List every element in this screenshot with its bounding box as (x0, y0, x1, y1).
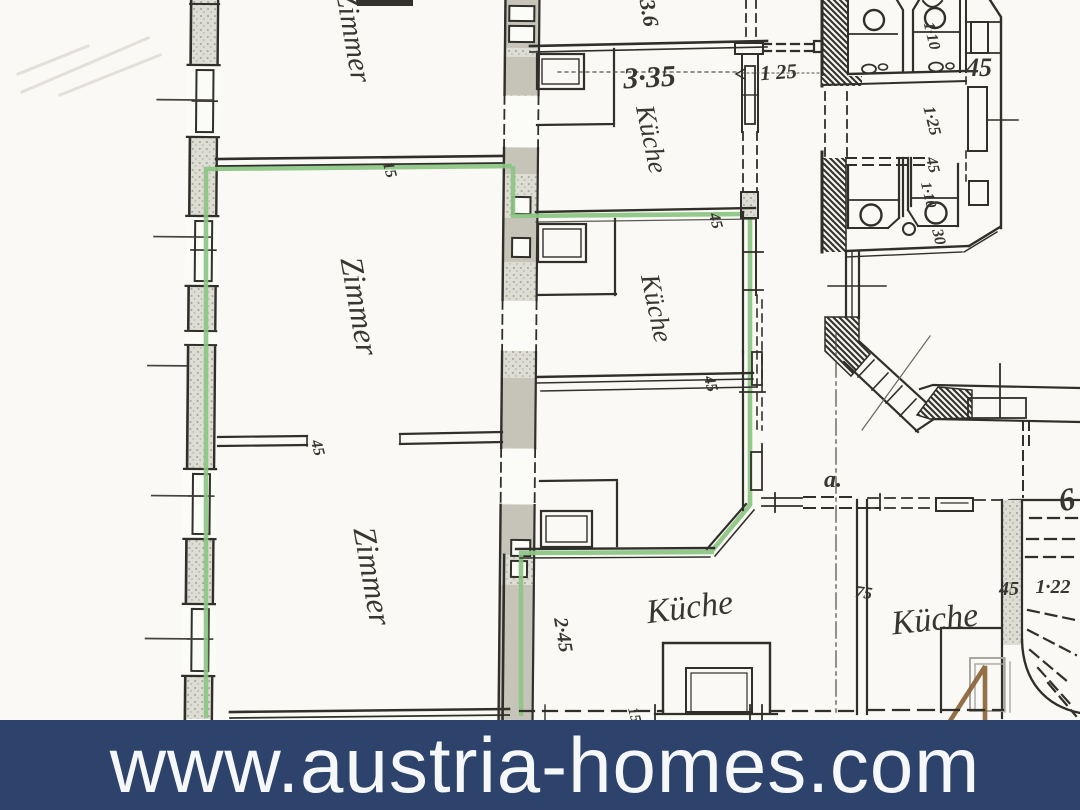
svg-text:3.6: 3.6 (635, 0, 665, 28)
svg-text:1 25: 1 25 (759, 59, 797, 86)
svg-text:75: 75 (854, 582, 874, 603)
svg-text:1·22: 1·22 (1036, 576, 1071, 598)
svg-text:45: 45 (965, 53, 992, 82)
svg-text:www.austria-homes.com: www.austria-homes.com (109, 721, 981, 809)
svg-text:45: 45 (998, 578, 1019, 600)
svg-text:3·35: 3·35 (621, 60, 676, 96)
svg-text:a.: a. (824, 467, 842, 493)
